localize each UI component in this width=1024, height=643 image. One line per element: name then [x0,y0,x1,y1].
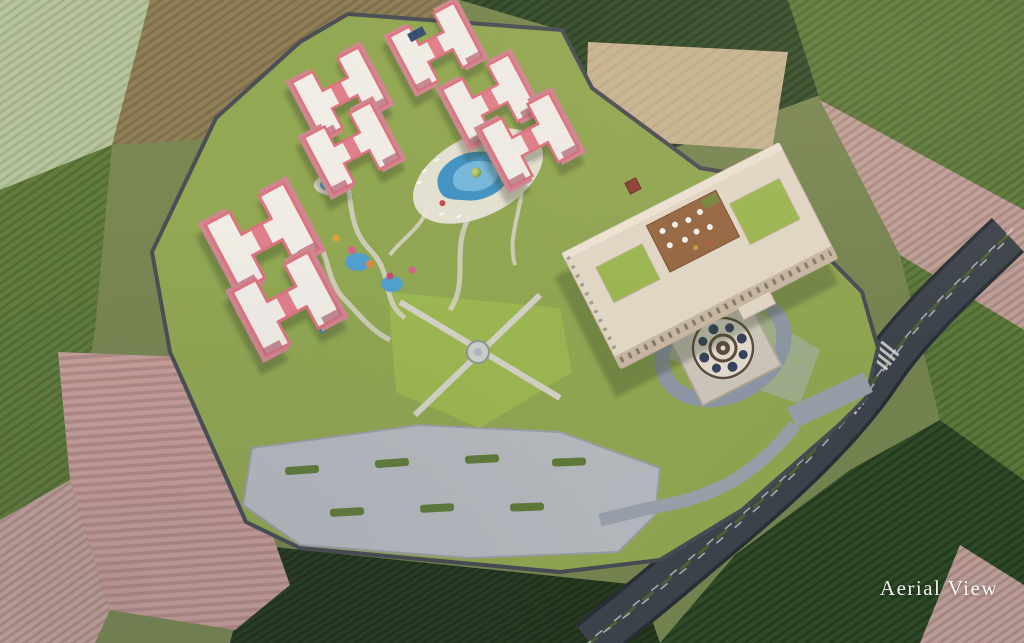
aerial-rendering-canvas [0,0,1024,643]
caption-aerial-view: Aerial View [880,576,998,601]
aerial-rendering: Aerial View [0,0,1024,643]
parking-lot [243,425,660,558]
